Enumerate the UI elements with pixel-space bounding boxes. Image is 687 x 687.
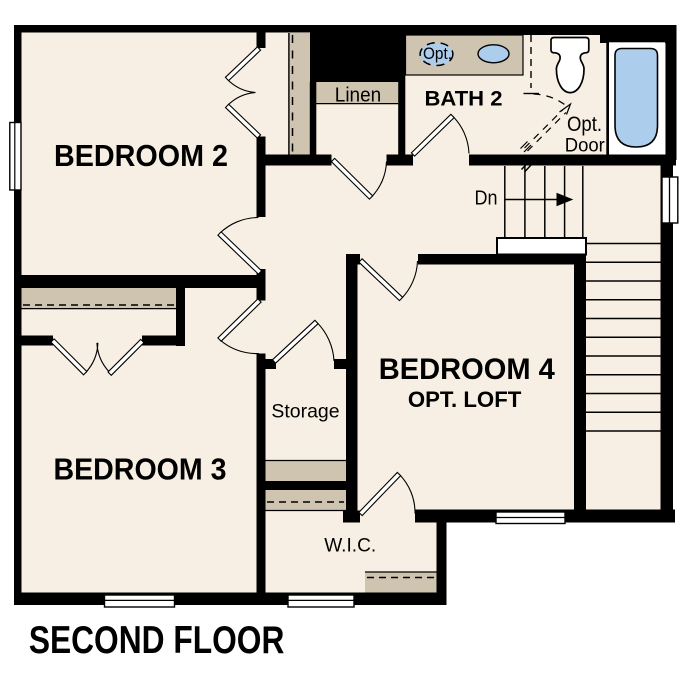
svg-text:Storage: Storage xyxy=(271,401,339,423)
svg-text:BEDROOM 3: BEDROOM 3 xyxy=(54,452,227,487)
svg-text:Opt.: Opt. xyxy=(423,45,452,63)
svg-text:Linen: Linen xyxy=(335,83,381,106)
svg-text:W.I.C.: W.I.C. xyxy=(324,535,376,557)
svg-text:SECOND FLOOR: SECOND FLOOR xyxy=(29,619,285,662)
svg-text:BATH 2: BATH 2 xyxy=(425,87,503,110)
svg-text:OPT. LOFT: OPT. LOFT xyxy=(408,387,522,412)
svg-text:Opt.: Opt. xyxy=(567,113,602,136)
svg-text:Dn: Dn xyxy=(475,188,498,210)
svg-text:BEDROOM 2: BEDROOM 2 xyxy=(54,139,228,173)
svg-text:Door: Door xyxy=(565,134,605,156)
svg-text:BEDROOM 4: BEDROOM 4 xyxy=(379,353,555,386)
